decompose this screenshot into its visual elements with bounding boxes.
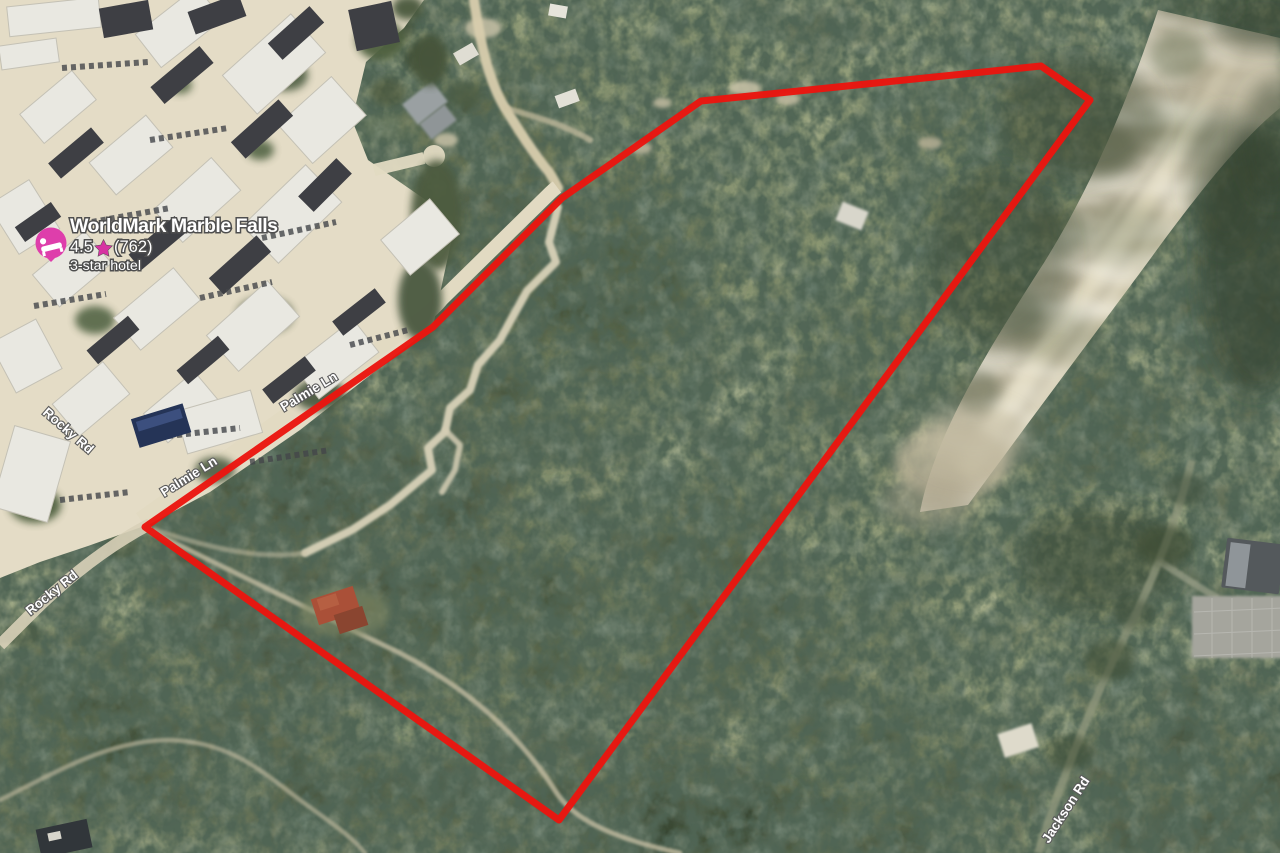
svg-text:4.5: 4.5 xyxy=(70,238,93,256)
svg-text:(762): (762) xyxy=(114,238,153,256)
svg-text:3-star hotel: 3-star hotel xyxy=(70,258,141,274)
svg-text:WorldMark Marble Falls: WorldMark Marble Falls xyxy=(70,215,278,237)
